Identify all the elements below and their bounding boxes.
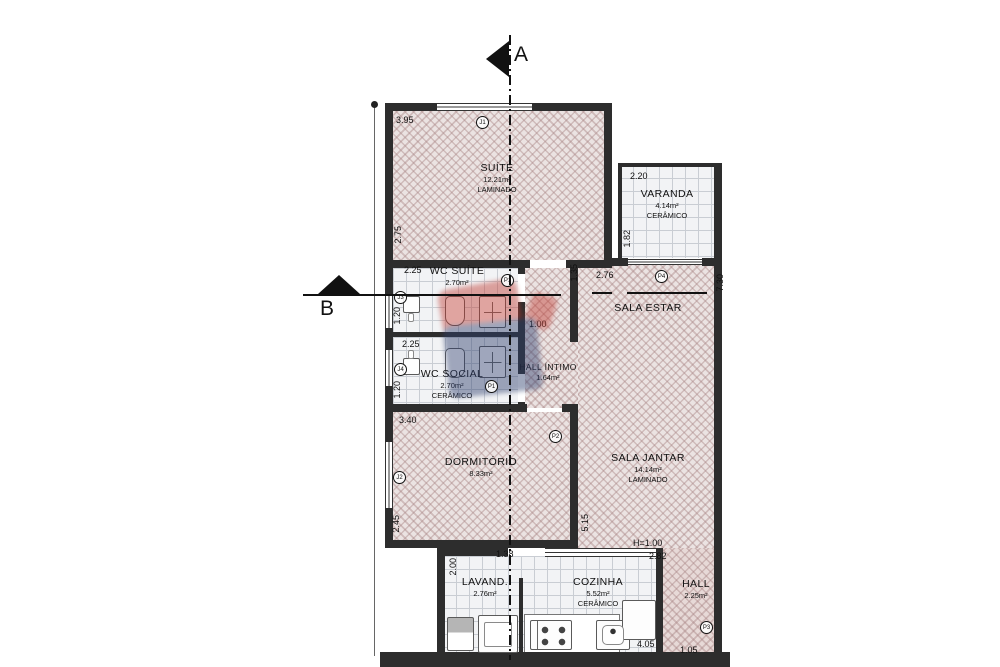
dim-varanda-height: 1.82 (623, 230, 632, 248)
wall-dorm-right (570, 412, 578, 548)
floor-plan: A B SUÍTE 12.21m² LAMINADO VARANDA 4.14m… (0, 0, 1000, 667)
dim-wc-suite-width: 2.25 (404, 266, 422, 275)
dim-suite-height: 2.75 (394, 226, 403, 244)
window-dormitorio (385, 442, 393, 508)
room-floor: CERÂMICO (421, 391, 484, 400)
window-marker-j3: J3 (394, 291, 407, 304)
room-label-lavanderia: LAVAND. 2.76m² (462, 576, 508, 598)
section-line-b (303, 294, 561, 296)
dim-sala-estar-width: 2.76 (596, 271, 614, 280)
room-label-sala-jantar: SALA JANTAR 14.14m² LAMINADO (611, 452, 685, 484)
room-area: 2.70m² (430, 278, 485, 287)
room-label-hall-intimo: HALL ÍNTIMO 1.64m² (519, 362, 576, 382)
wall-bottom (380, 652, 730, 667)
room-area: 2.76m² (462, 589, 508, 598)
wall-dorm-top (385, 404, 527, 412)
room-label-sala-estar: SALA ESTAR (614, 302, 681, 314)
room-floor: CERÂMICO (641, 211, 694, 220)
room-name: VARANDA (641, 188, 694, 200)
dimension-line-left (374, 104, 375, 656)
window-marker-j4: J4 (394, 363, 407, 376)
door-marker-p3-hall: P3 (700, 621, 713, 634)
wall-estar-top-left (612, 258, 628, 266)
sink-stem-wc-social (408, 350, 414, 359)
room-name: SALA ESTAR (614, 302, 681, 314)
wall-suite-left (385, 103, 393, 268)
section-arrow-a (486, 41, 509, 77)
beam-line-short (592, 292, 612, 294)
dim-suite-width: 3.95 (396, 116, 414, 125)
fridge (622, 600, 656, 640)
room-area: 2.25m² (682, 591, 710, 600)
beam-line-long (627, 292, 707, 294)
room-name: HALL ÍNTIMO (519, 362, 576, 372)
wall-varanda-right (714, 163, 722, 260)
window-suite (437, 103, 532, 111)
room-name: WC SOCIAL (421, 368, 484, 380)
room-name: COZINHA (573, 576, 623, 588)
sliding-door-varanda (628, 259, 702, 265)
dim-counter-height: H=1.00 (633, 539, 662, 548)
room-name: WC SUÍTE (430, 265, 485, 277)
kitchen-sink-basin (602, 625, 624, 645)
section-arrow-b (318, 275, 360, 294)
wall-suite-right (604, 103, 612, 268)
wall-dorm-bottom (385, 540, 578, 548)
wall-lavand-left (437, 548, 445, 658)
window-marker-j1: J1 (476, 116, 489, 129)
floor-dormitorio (393, 412, 570, 544)
window-marker-j2: J2 (393, 471, 406, 484)
section-label-b: B (320, 298, 334, 319)
dim-varanda-width: 2.20 (630, 172, 648, 181)
dim-hall-bottom: 1.05 (680, 646, 698, 655)
floor-hall-intimo (518, 268, 578, 408)
dimension-dot (371, 101, 378, 108)
wall-varanda-top (618, 163, 722, 167)
section-line-a (509, 35, 511, 660)
door-marker-p4-varanda: P4 (655, 270, 668, 283)
dim-lavand-height: 2.00 (449, 558, 458, 576)
shower-wc-suite (479, 296, 506, 328)
door-opening-wc-suite (518, 274, 525, 302)
room-label-wc-social: WC SOCIAL 2.70m² CERÂMICO (421, 368, 484, 400)
room-label-dormitorio: DORMITÓRIO 8.33m² (445, 456, 517, 478)
room-label-varanda: VARANDA 4.14m² CERÂMICO (641, 188, 694, 220)
room-label-cozinha: COZINHA 5.52m² CERÂMICO (573, 576, 623, 608)
floor-hall (656, 548, 714, 654)
dim-sala-estar-height: 7.30 (716, 274, 725, 292)
dim-cozinha-bottom: 4.05 (637, 640, 655, 649)
room-label-hall: HALL 2.25m² (682, 578, 710, 600)
wall-cozinha-hall (656, 548, 663, 658)
wall-lavand-cozinha (519, 578, 523, 658)
washing-machine-door (484, 622, 512, 647)
dim-wc-social-height: 1.20 (393, 381, 402, 399)
room-area: 8.33m² (445, 469, 517, 478)
door-marker-p2-dormitorio: P2 (549, 430, 562, 443)
room-floor: CERÂMICO (573, 599, 623, 608)
room-area: 1.64m² (519, 373, 576, 382)
dim-dorm-height: 2.45 (392, 515, 401, 533)
wall-wc-divider (385, 332, 525, 337)
room-area: 2.70m² (421, 381, 484, 390)
door-opening-suite (530, 260, 566, 268)
door-marker-p1-wc-social: P1 (485, 380, 498, 393)
dim-dorm-width: 3.40 (399, 416, 417, 425)
room-name: SALA JANTAR (611, 452, 685, 464)
stove (530, 620, 572, 650)
dim-hall-intimo-width: 1.00 (529, 320, 547, 329)
section-label-a: A (514, 44, 528, 65)
sink-stem-wc-suite (408, 313, 414, 322)
wall-right-main (714, 258, 722, 660)
counter-pass-through (545, 548, 656, 557)
dim-wc-suite-height: 1.20 (393, 307, 402, 325)
dim-cozinha-width: 2.82 (649, 552, 667, 561)
dim-wc-social-width: 2.25 (402, 340, 420, 349)
room-name: DORMITÓRIO (445, 456, 517, 468)
room-area: 4.14m² (641, 201, 694, 210)
toilet-wc-suite (445, 296, 465, 326)
door-marker-p1-wc-suite: P1 (501, 274, 514, 287)
room-area: 14.14m² (611, 465, 685, 474)
dim-jantar-height: 5.15 (581, 514, 590, 532)
room-name: LAVAND. (462, 576, 508, 588)
room-area: 5.52m² (573, 589, 623, 598)
room-name: HALL (682, 578, 710, 590)
wall-dorm-top-jamb (562, 404, 578, 412)
laundry-tank (447, 617, 474, 651)
room-label-wc-suite: WC SUÍTE 2.70m² (430, 265, 485, 287)
room-floor: LAMINADO (611, 475, 685, 484)
wall-estar-top-right (702, 258, 714, 266)
dim-sala-estar-offset: 1.35 (570, 264, 579, 282)
